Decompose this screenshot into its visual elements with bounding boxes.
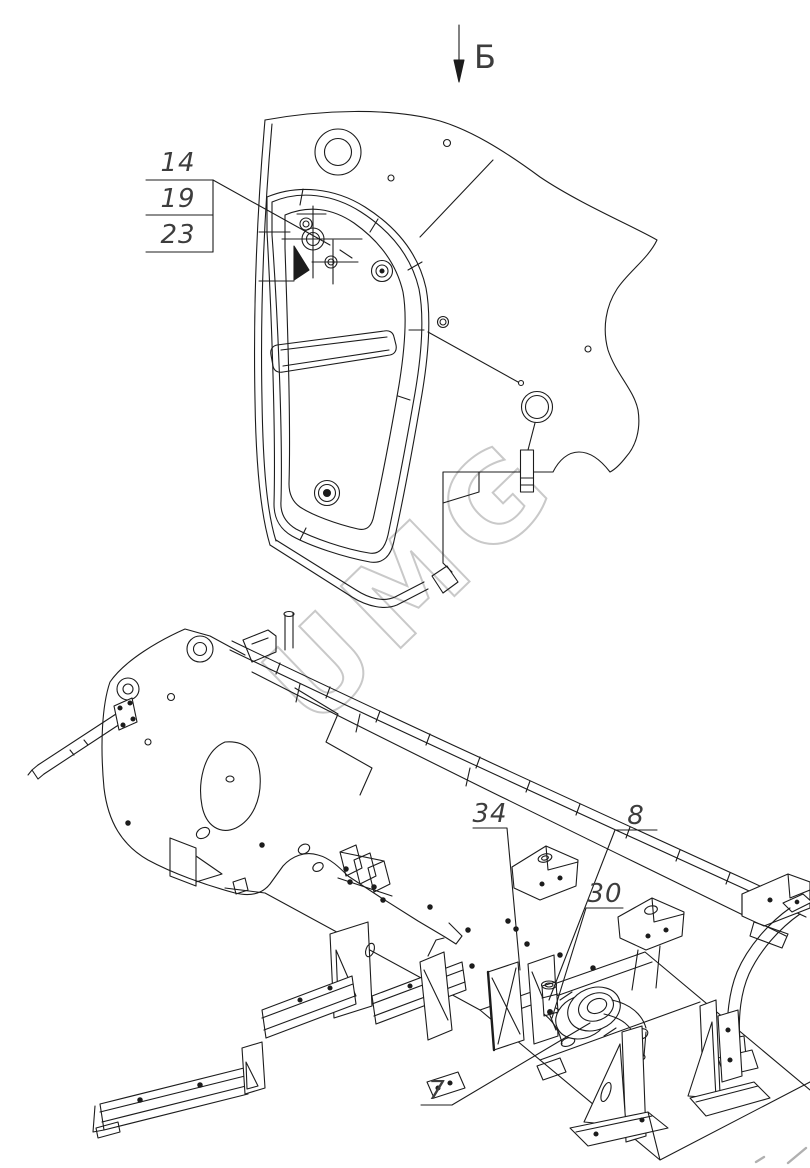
corner-marks xyxy=(756,1148,806,1163)
view-direction-letter: Б xyxy=(474,40,496,74)
drawing-lineart xyxy=(0,0,810,1168)
callout-number-23: 23 xyxy=(150,221,206,249)
part-label-8: 8 xyxy=(608,802,664,830)
part-label-34: 34 xyxy=(462,800,518,828)
upper-view-drawing xyxy=(255,111,657,607)
panel-holes xyxy=(315,129,592,506)
callout-number-19: 19 xyxy=(150,185,206,213)
mid-bracket-fins xyxy=(338,845,392,896)
part-label-30: 30 xyxy=(577,880,633,908)
outrigger-beam-left xyxy=(93,1042,265,1138)
right-end-beam xyxy=(742,874,810,948)
part-label-7: 7 xyxy=(409,1077,465,1105)
rod-detail xyxy=(28,698,137,779)
callout-number-14: 14 xyxy=(150,149,206,177)
view-direction-arrow xyxy=(454,25,464,82)
drawing-sheet: UMG xyxy=(0,0,810,1168)
